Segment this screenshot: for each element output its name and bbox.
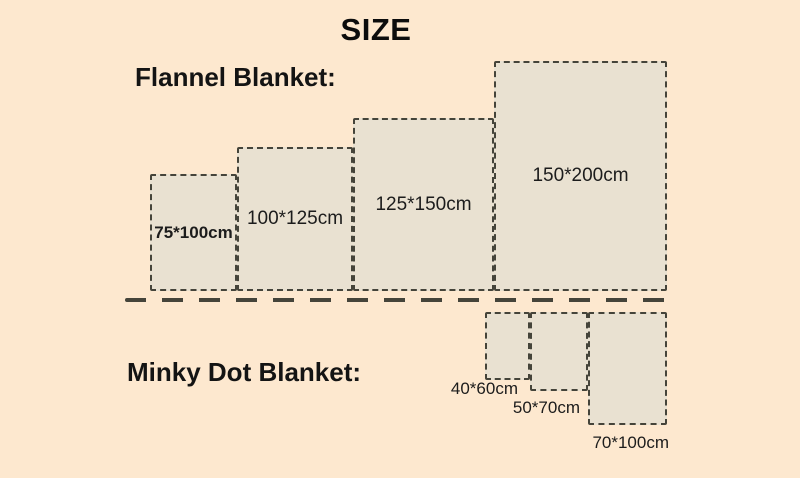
minky-size-label-50x70: 50*70cm (513, 398, 580, 418)
flannel-size-label-125x150: 125*150cm (375, 194, 471, 216)
minky-size-rect-40x60 (485, 312, 530, 380)
flannel-size-rect-150x200: 150*200cm (494, 61, 667, 291)
section-divider (125, 298, 680, 302)
minky-size-label-70x100: 70*100cm (592, 433, 669, 453)
flannel-size-label-150x200: 150*200cm (532, 165, 628, 187)
blanket-size-chart: SIZE Flannel Blanket: 75*100cm 100*125cm… (0, 0, 800, 478)
flannel-section-label: Flannel Blanket: (135, 62, 336, 93)
page-title: SIZE (0, 12, 752, 48)
minky-section-label: Minky Dot Blanket: (127, 357, 361, 388)
minky-size-rect-70x100 (588, 312, 667, 425)
flannel-size-rect-125x150: 125*150cm (353, 118, 494, 291)
flannel-size-label-100x125: 100*125cm (247, 208, 343, 230)
flannel-size-label-75x100: 75*100cm (154, 223, 232, 243)
flannel-size-rect-75x100: 75*100cm (150, 174, 237, 291)
flannel-size-rect-100x125: 100*125cm (237, 147, 353, 291)
minky-size-label-40x60: 40*60cm (451, 379, 518, 399)
minky-size-rect-50x70 (530, 312, 588, 391)
